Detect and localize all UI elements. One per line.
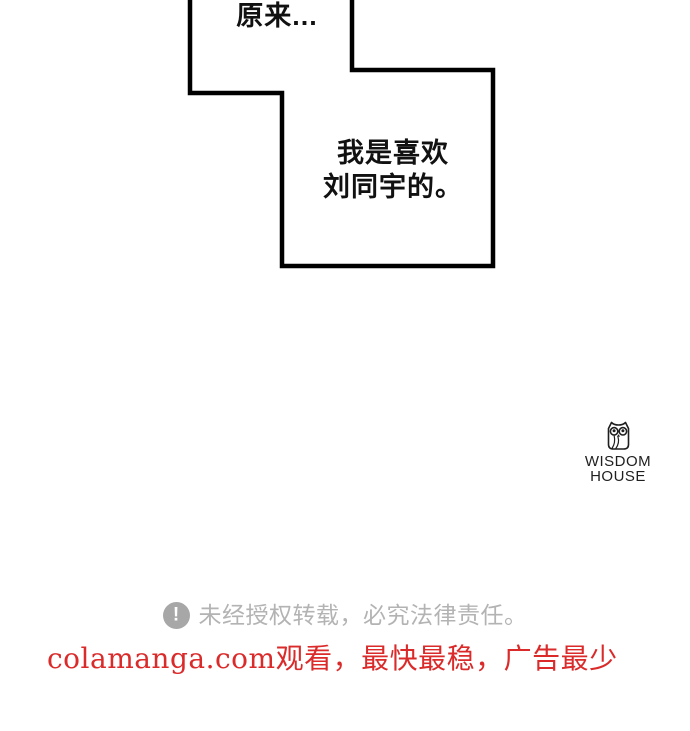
comic-page: 原来... 我是喜欢 刘同宇的。 WISDOM HOUSE ! 未经授权转载， — [0, 0, 690, 731]
speech-bubble-text-1: 原来... — [194, 0, 360, 32]
site-watermark-text: colamanga.com观看，最快最稳，广告最少 — [47, 642, 618, 676]
speech-bubble-text-2-line1: 我是喜欢 — [288, 136, 498, 170]
exclamation-icon: ! — [163, 602, 190, 629]
owl-icon — [605, 420, 632, 451]
copyright-notice: ! 未经授权转载，必究法律责任。 — [0, 602, 690, 629]
publisher-name-line2: HOUSE — [567, 469, 669, 484]
publisher-name-line1: WISDOM — [567, 454, 669, 469]
copyright-notice-text: 未经授权转载，必究法律责任。 — [199, 602, 528, 629]
speech-bubble-text-2-line2: 刘同宇的。 — [288, 170, 498, 204]
speech-bubble-text-2: 我是喜欢 刘同宇的。 — [288, 136, 498, 204]
publisher-logo: WISDOM HOUSE — [567, 420, 669, 484]
